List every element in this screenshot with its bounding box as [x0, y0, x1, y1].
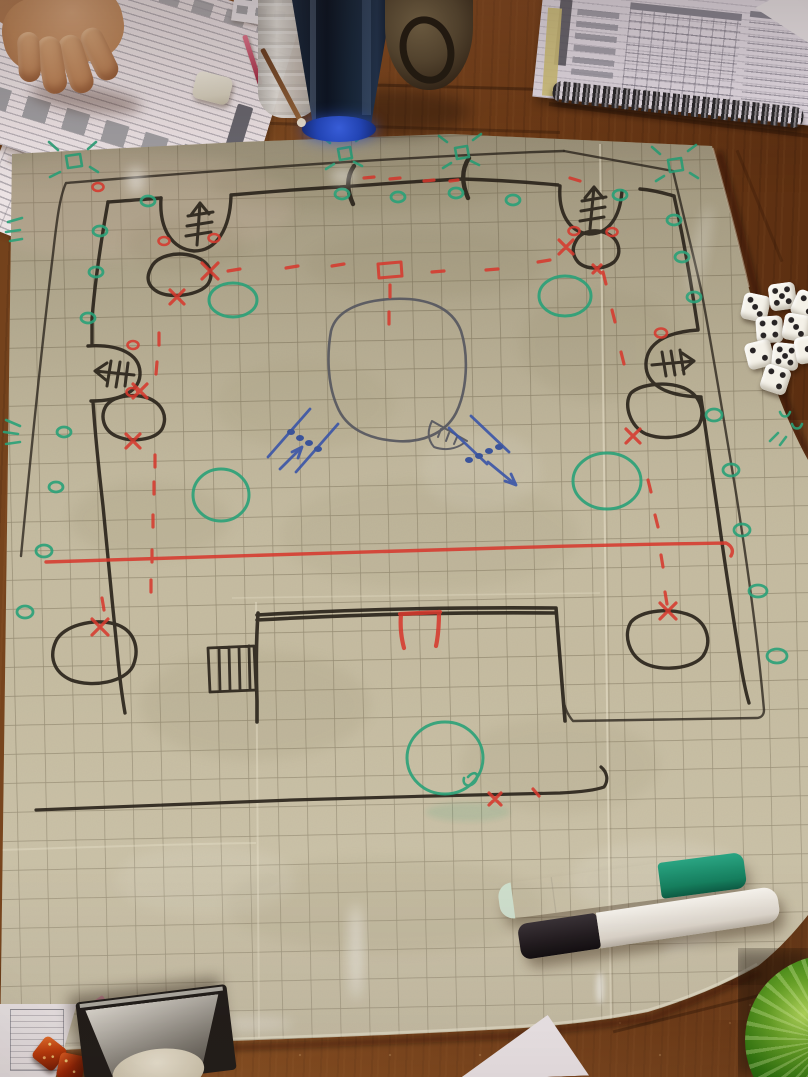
glass-highlight: [362, 0, 371, 115]
photo-scene: [0, 0, 808, 1077]
glass-blue-base: [302, 116, 376, 142]
notebook-stat-bars: [571, 3, 620, 79]
jug-handle: [393, 10, 462, 89]
glass-highlight: [310, 0, 316, 120]
green-glass: [738, 948, 808, 1077]
finger: [17, 31, 42, 82]
